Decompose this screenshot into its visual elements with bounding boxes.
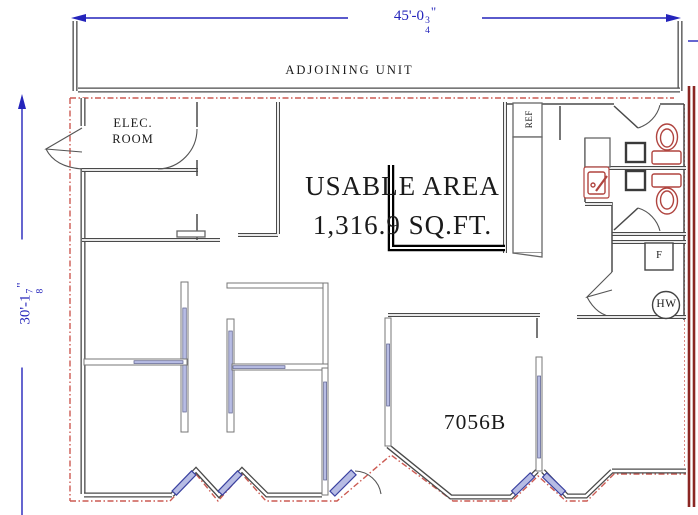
ref-label: REF: [524, 104, 534, 134]
width-feet: 45'-0: [394, 8, 424, 24]
shelf-icon: [177, 231, 205, 237]
elec-room-line1: ELEC.: [94, 116, 172, 132]
exterior-door-swing-icon: [46, 128, 82, 169]
width-dimension-label: 45'-034": [348, 5, 482, 36]
glazing-panel-icon: [543, 473, 566, 495]
usable-area-line2: 1,316.9 SQ.FT.: [250, 206, 555, 245]
usable-area-line1: USABLE AREA: [250, 167, 555, 206]
restroom-door-swing-icon: [638, 105, 660, 128]
furnace-label: F: [646, 250, 672, 262]
toilet-icon: [652, 174, 681, 214]
floor-plan: 45'-034" 30'-178" ADJOINING UNIT ELEC. R…: [0, 0, 698, 515]
width-frac-den: 4: [425, 27, 430, 37]
lease-line-dark: [685, 86, 695, 507]
storefront-walls: [172, 446, 686, 497]
exterior-walls: [83, 98, 172, 495]
vanity-icon: [626, 143, 645, 162]
vanity-icon: [626, 171, 645, 190]
height-inch-mark: ": [14, 282, 29, 287]
adjoining-unit-label: ADJOINING UNIT: [262, 63, 437, 77]
height-feet: 30'-1: [18, 294, 34, 324]
unit-number-label: 7056B: [420, 410, 530, 435]
width-inch-mark: ": [431, 4, 436, 19]
glazing-panel-icon: [512, 473, 535, 495]
water-heater-label: HW: [653, 298, 680, 311]
entry-door-leaf-icon: [330, 470, 356, 496]
cabinet: [585, 138, 610, 167]
entry-door-swing-icon: [355, 471, 381, 494]
toilet-icon: [652, 124, 681, 164]
height-dimension-label: 30'-178": [15, 240, 46, 368]
mech-door-swing-icon: [587, 272, 614, 317]
counter-endcap: [513, 253, 542, 257]
elec-room-line2: ROOM: [94, 132, 172, 148]
glazing-panels: [172, 470, 565, 496]
restroom-door-swing-icon: [638, 208, 660, 231]
elec-room-label: ELEC. ROOM: [94, 116, 172, 147]
glazing-panel-icon: [172, 471, 196, 495]
sink-icon: [584, 167, 609, 198]
usable-area-label: USABLE AREA 1,316.9 SQ.FT.: [250, 167, 555, 245]
height-frac-den: 8: [36, 289, 46, 294]
glazing-panel-icon: [218, 471, 242, 495]
